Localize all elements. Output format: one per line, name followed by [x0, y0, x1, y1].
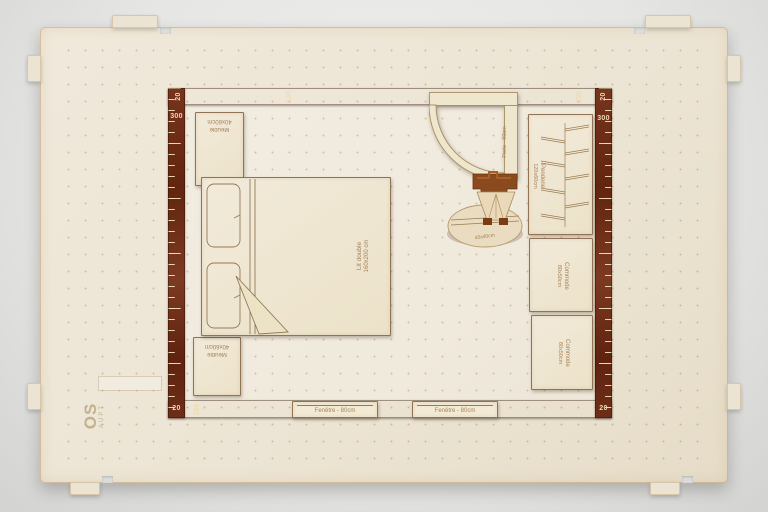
board-tab-top-right	[645, 15, 691, 28]
board-notch-top-left	[160, 27, 171, 34]
piece-commode-bottom[interactable]: Commode 80x50cm	[531, 315, 593, 390]
ruler-right-number-20: 20	[595, 400, 612, 417]
commode-bottom-name: Commode	[563, 339, 571, 367]
window-right-line	[417, 405, 493, 406]
nightstand-shape: 40x40cm	[443, 170, 535, 252]
board-tab-bottom-left	[70, 482, 100, 495]
piece-window-left[interactable]: Fenêtre - 80cm	[292, 401, 378, 418]
commode-top-name: Commode	[562, 262, 570, 290]
board-notch-top-right	[634, 27, 645, 34]
piece-commode-top[interactable]: Commode 80x50cm	[529, 238, 593, 312]
ruler-right	[595, 88, 612, 418]
piece-wardrobe[interactable]: Penderie 120x60cm	[528, 114, 593, 235]
board-tab-left-bottom	[27, 383, 41, 410]
piece-bed[interactable]: Lit double 160x200 cm	[201, 177, 391, 336]
ruler-bottom-number-100: 100	[189, 401, 206, 418]
commode-bottom-size: 80x50cm	[556, 342, 563, 364]
meuble-bottom-name: Meuble	[207, 351, 227, 357]
meuble-top-size: 40x60cm	[207, 119, 231, 125]
board-tab-right-top	[727, 55, 741, 82]
door-label: Porte - 90cm	[502, 126, 509, 157]
board-mark-small: AUPT	[99, 404, 105, 428]
board-mark: OS AUPT	[75, 381, 111, 451]
meuble-top-name: Meuble	[210, 126, 230, 132]
window-left-line	[297, 405, 373, 406]
wardrobe-name: Penderie	[538, 164, 546, 188]
piece-window-right[interactable]: Fenêtre - 80cm	[412, 401, 498, 418]
board-mark-big: OS	[82, 403, 99, 430]
board-tab-right-bottom	[727, 383, 741, 410]
ruler-left	[168, 88, 185, 418]
ruler-left-number-300: 300	[168, 108, 185, 125]
ruler-top-number-100: 100	[281, 88, 298, 105]
ruler-left-number-20: 20	[168, 400, 185, 417]
ruler-bottom	[168, 400, 612, 418]
ruler-right-number-300: 300	[595, 110, 612, 127]
bed-name: Lit double	[356, 242, 364, 270]
window-right-label: Fenêtre - 80cm	[413, 408, 497, 416]
bed-size: 160x200 cm	[364, 240, 372, 273]
photo-floorplan-kit: OS AUPT 20 100 300 20 300 20 300 20 100 …	[0, 0, 768, 512]
ruler-top-number-20-left: 20	[170, 88, 187, 105]
piece-meuble-bottom[interactable]: Meuble 40x60cm	[193, 337, 241, 396]
piece-nightstand-3d[interactable]: 40x40cm	[443, 170, 535, 252]
board-tab-top-left	[112, 15, 158, 28]
board-notch-bottom-right	[682, 476, 693, 483]
door-label-wrap: Porte - 90cm	[479, 137, 531, 147]
commode-top-size: 80x50cm	[555, 265, 562, 287]
board-notch-bottom-left	[102, 476, 113, 483]
board-tab-bottom-right	[650, 482, 680, 495]
ruler-top	[168, 88, 612, 105]
window-left-label: Fenêtre - 80cm	[293, 408, 377, 416]
meuble-bottom-size: 40x60cm	[205, 344, 229, 350]
bed-label: Lit double 160x200 cm	[334, 246, 394, 266]
ruler-top-number-20-right: 20	[595, 88, 612, 105]
commode-bottom-label: Commode 80x50cm	[538, 343, 588, 363]
board-tab-left-top	[27, 55, 41, 82]
ruler-top-number-300: 300	[571, 88, 588, 105]
etched-slot	[98, 376, 162, 391]
piece-meuble-top[interactable]: Meuble 40x60cm	[195, 112, 244, 186]
commode-top-label: Commode 80x50cm	[537, 266, 587, 286]
